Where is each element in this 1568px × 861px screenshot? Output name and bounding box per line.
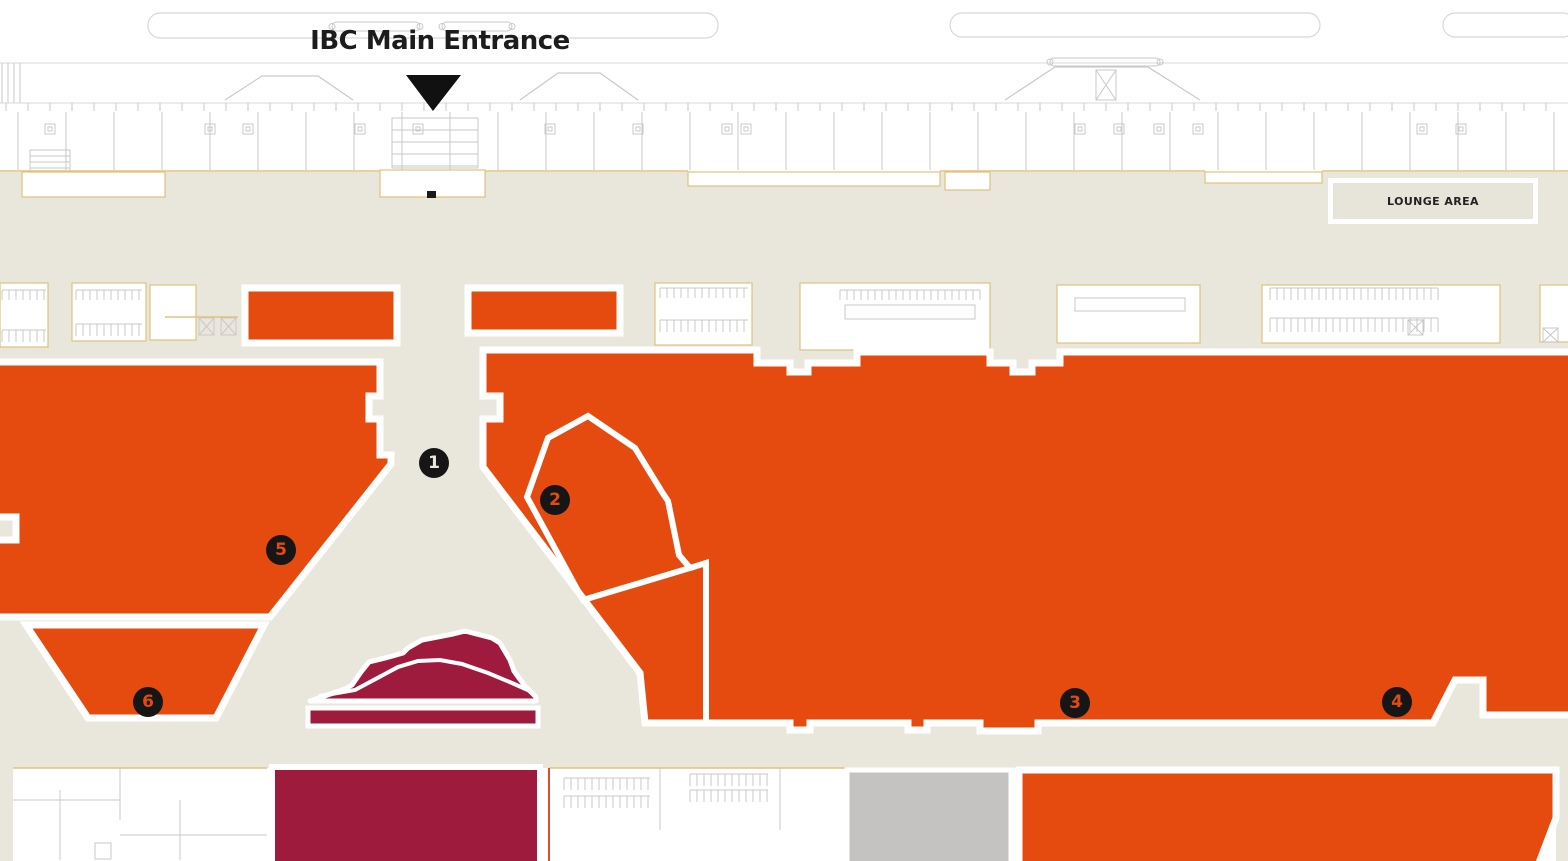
- maroon-south-block: [272, 767, 540, 861]
- canopy-roof-outline: [225, 76, 353, 100]
- room-block: [150, 285, 196, 340]
- orange-zone-south-hall: [1019, 770, 1556, 861]
- orange-zone-booth-block-a: [245, 288, 397, 343]
- roof-outline: [950, 13, 1320, 37]
- entrance-arrow-icon: [406, 75, 461, 111]
- map-marker-1[interactable]: 1: [419, 448, 449, 478]
- building-recess: [22, 172, 165, 197]
- map-marker-3[interactable]: 3: [1060, 688, 1090, 718]
- floorplan-canvas: [0, 0, 1568, 861]
- room-block: [1540, 285, 1568, 342]
- lounge-area-label: LOUNGE AREA: [1328, 178, 1538, 224]
- gray-south-block: [847, 770, 1011, 861]
- canopy-roof-outline: [520, 73, 638, 100]
- orange-zone-booth-block-b: [468, 288, 620, 333]
- entrance-title: IBC Main Entrance: [270, 26, 610, 56]
- room-block: [13, 768, 267, 861]
- stage-base: [308, 708, 538, 726]
- orange-zone-main-hall: [483, 350, 1568, 731]
- building-recess: [688, 172, 940, 186]
- room-block: [800, 283, 990, 350]
- room-block: [0, 283, 48, 347]
- room-block: [1057, 285, 1200, 343]
- building-recess: [945, 172, 990, 190]
- map-marker-2[interactable]: 2: [540, 485, 570, 515]
- roof-outline: [1443, 13, 1568, 37]
- map-marker-5[interactable]: 5: [266, 535, 296, 565]
- building-recess: [1205, 172, 1322, 183]
- map-marker-6[interactable]: 6: [133, 687, 163, 717]
- entrance-door-tick: [427, 191, 436, 198]
- venue-map: IBC Main Entrance LOUNGE AREA 123456: [0, 0, 1568, 861]
- canopy-roof-outline: [1005, 67, 1200, 100]
- map-marker-4[interactable]: 4: [1382, 687, 1412, 717]
